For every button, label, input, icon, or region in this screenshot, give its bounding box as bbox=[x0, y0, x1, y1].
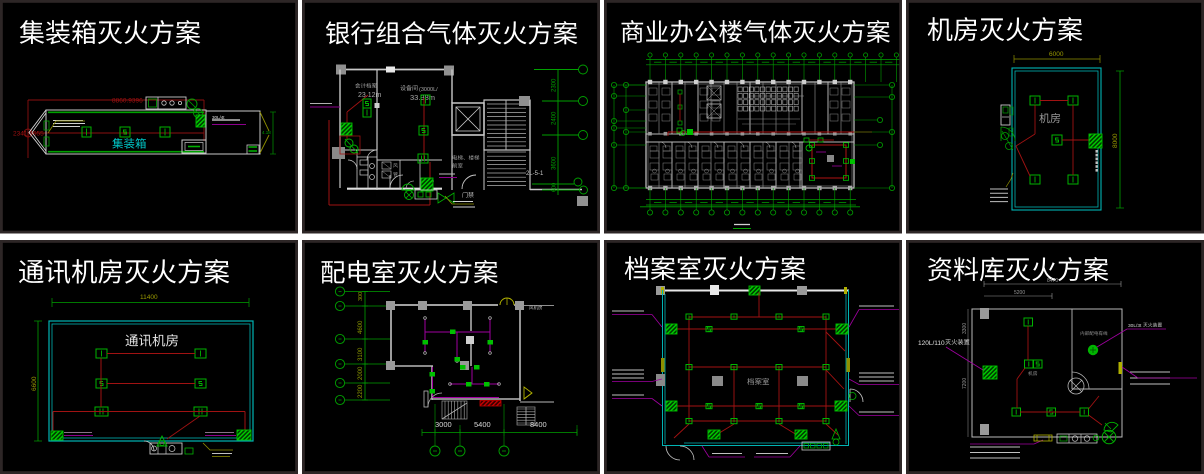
svg-text:3600: 3600 bbox=[552, 156, 558, 170]
svg-text:8860.9396: 8860.9396 bbox=[112, 98, 143, 105]
svg-text:120L/110: 120L/110 bbox=[918, 340, 945, 347]
svg-text:5200: 5200 bbox=[1014, 290, 1025, 296]
svg-text:2341.0655: 2341.0655 bbox=[13, 131, 44, 138]
svg-text:5400: 5400 bbox=[474, 420, 491, 429]
svg-text:30L/3t: 30L/3t bbox=[1128, 323, 1142, 329]
svg-text:7200: 7200 bbox=[962, 378, 968, 389]
svg-text:4600: 4600 bbox=[358, 320, 364, 334]
svg-text:3300: 3300 bbox=[962, 323, 968, 334]
svg-text:23.12m: 23.12m bbox=[358, 92, 382, 99]
svg-text:4.18: 4.18 bbox=[262, 130, 271, 135]
svg-text:33.98m: 33.98m bbox=[410, 93, 435, 102]
svg-text:6000: 6000 bbox=[1049, 51, 1064, 58]
svg-text:11400: 11400 bbox=[140, 294, 158, 301]
svg-text:300: 300 bbox=[358, 292, 364, 301]
svg-text:3100: 3100 bbox=[358, 347, 364, 361]
svg-text:30L/4t: 30L/4t bbox=[212, 115, 225, 120]
svg-text:8470: 8470 bbox=[1047, 278, 1058, 284]
svg-text:600: 600 bbox=[552, 183, 558, 192]
svg-text:2300: 2300 bbox=[552, 78, 558, 92]
svg-text:2L-5-1: 2L-5-1 bbox=[526, 171, 544, 177]
svg-text:8000: 8000 bbox=[1112, 133, 1119, 148]
svg-text:6600: 6600 bbox=[31, 376, 38, 391]
svg-text:3000: 3000 bbox=[435, 420, 452, 429]
svg-text:2200: 2200 bbox=[358, 384, 364, 398]
svg-text:8400: 8400 bbox=[530, 420, 547, 429]
svg-text:2000: 2000 bbox=[358, 366, 364, 380]
svg-text:2400: 2400 bbox=[552, 111, 558, 125]
